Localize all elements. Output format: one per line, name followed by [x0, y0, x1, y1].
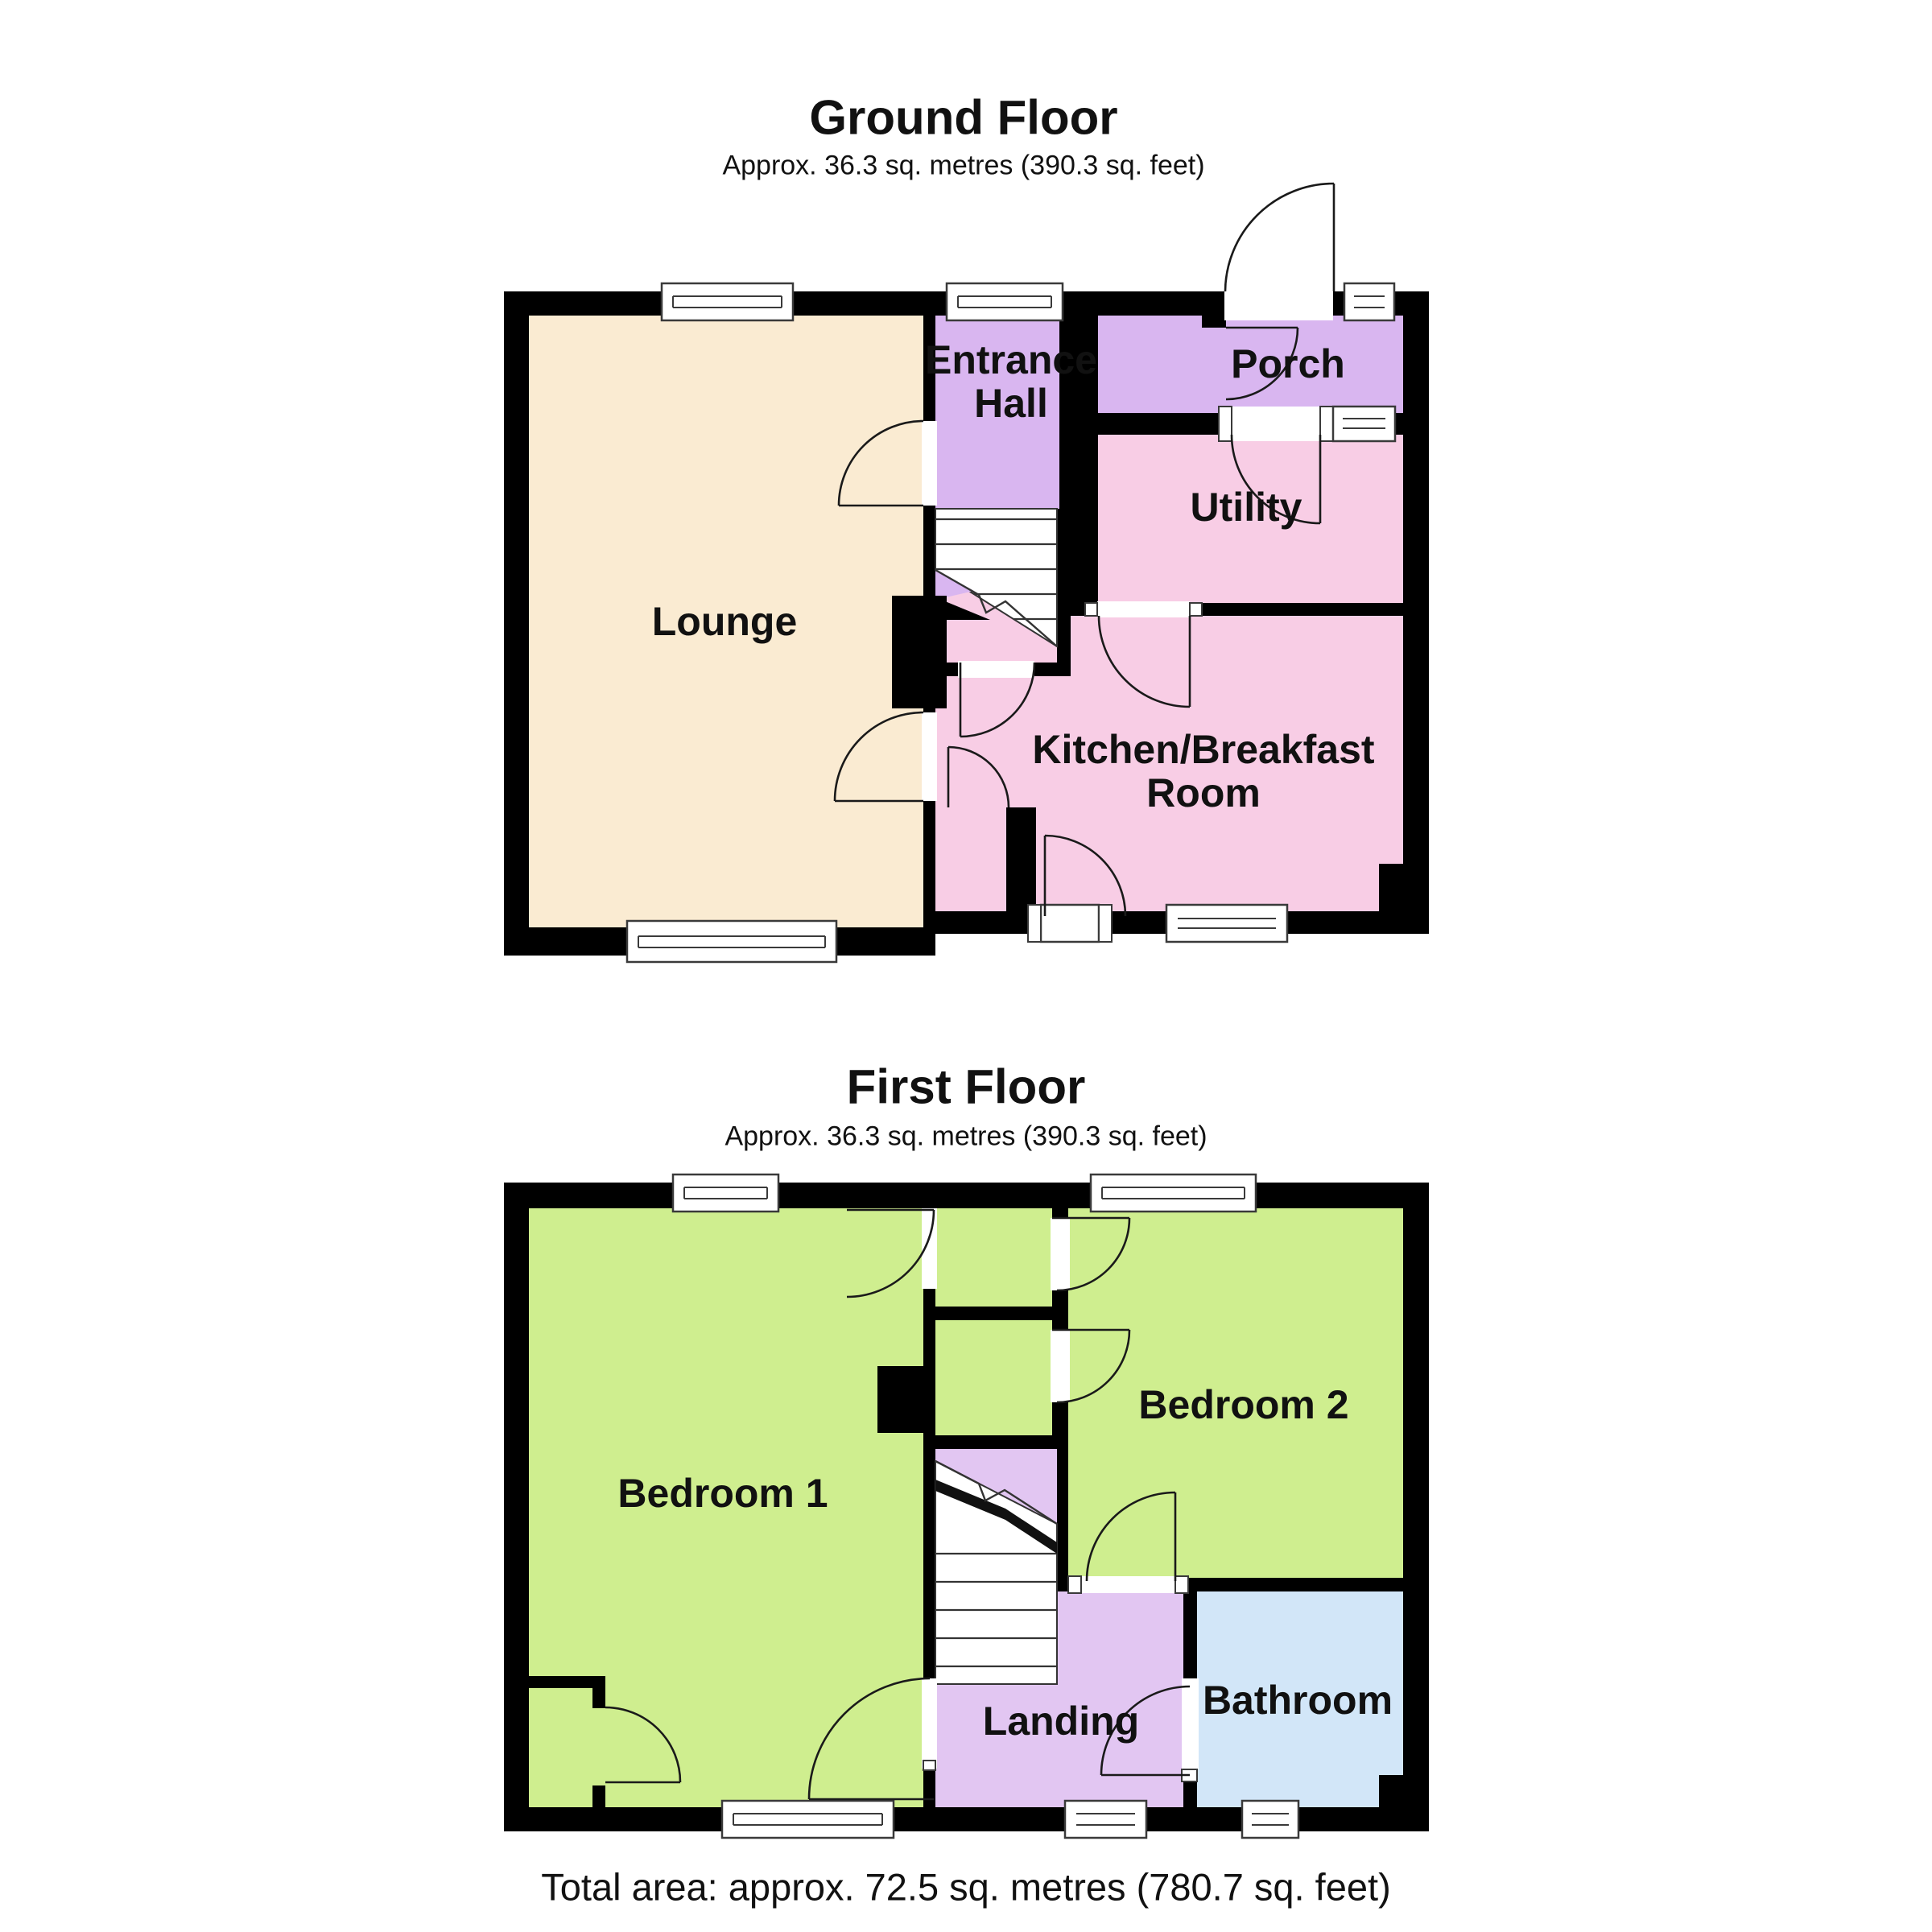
door-gap-bedroom1 — [922, 1678, 937, 1769]
door-jamb — [923, 1761, 935, 1770]
cupboard1-area — [935, 1208, 1052, 1307]
room-label-bathroom: Bathroom — [1203, 1678, 1393, 1722]
door-jamb — [1085, 603, 1097, 616]
window-hall-top — [947, 283, 1063, 320]
window-porch-utility — [1333, 407, 1395, 441]
window-porch-top — [1344, 283, 1394, 320]
door-jamb — [1068, 1576, 1081, 1593]
door-jamb — [1219, 407, 1232, 441]
porch-wall-stub — [1202, 291, 1226, 328]
cupboard2-area — [935, 1320, 1052, 1435]
door-arc-porch-entrance — [1225, 184, 1334, 291]
floorplan-page: Ground Floor Approx. 36.3 sq. metres (39… — [0, 0, 1932, 1932]
ground-floor-plan — [504, 184, 1429, 962]
nook-wall — [527, 1676, 605, 1688]
door-jamb — [1175, 1576, 1188, 1593]
window-bedroom1-top — [673, 1174, 778, 1212]
door-gap-utility-kitchen — [1097, 601, 1190, 617]
alcove-wall — [1006, 807, 1036, 911]
room-label-porch: Porch — [1231, 342, 1345, 386]
door-jamb — [1190, 603, 1202, 616]
room-label-landing: Landing — [983, 1699, 1139, 1743]
door-gap-cupboard1 — [1051, 1218, 1070, 1290]
window-kitchen-bottom — [1166, 905, 1287, 942]
door-gap-cupboard2 — [1051, 1330, 1070, 1402]
door-gap-bathroom — [1182, 1678, 1199, 1769]
chimney-breast-first — [877, 1366, 923, 1433]
window-landing-bottom — [1065, 1801, 1146, 1838]
window-bedroom1-bottom — [722, 1801, 894, 1838]
door-gap-porch-utility — [1232, 407, 1320, 441]
door-jamb — [1099, 905, 1112, 942]
back-door-threshold — [1041, 905, 1099, 942]
door-jamb — [1320, 407, 1333, 441]
door-gap-bedroom2 — [1081, 1576, 1175, 1593]
door-gap-porch-entrance — [1224, 283, 1333, 320]
window-lounge-top — [662, 283, 793, 320]
room-label-utility: Utility — [1191, 485, 1302, 529]
nook-wall — [592, 1785, 605, 1807]
room-label-lounge: Lounge — [652, 600, 798, 643]
door-gap-lounge-kitchen — [922, 712, 937, 801]
nook-wall — [592, 1688, 605, 1708]
door-jamb — [1028, 905, 1041, 942]
chimney-breast-ground — [892, 596, 947, 708]
room-label-kitchen: Kitchen/Breakfast Room — [1032, 728, 1374, 815]
window-bathroom-bottom — [1242, 1801, 1298, 1838]
window-bedroom2-top — [1091, 1174, 1256, 1212]
window-lounge-bottom — [627, 921, 836, 962]
lobby-door-gap — [958, 661, 1034, 678]
door-gap-hall-lounge — [922, 421, 937, 506]
room-label-entrance-hall: Entrance Hall — [925, 338, 1097, 425]
room-label-bedroom1: Bedroom 1 — [617, 1472, 828, 1515]
room-label-bedroom2: Bedroom 2 — [1138, 1383, 1348, 1426]
floorplan-drawing — [0, 0, 1932, 1932]
